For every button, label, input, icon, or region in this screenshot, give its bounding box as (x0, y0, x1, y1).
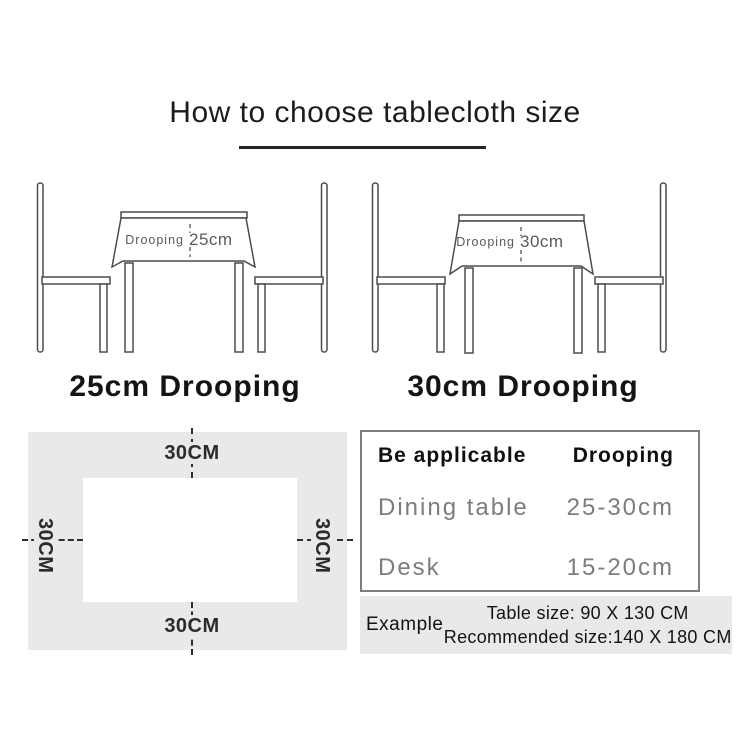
tablecloth-illustrations: Drooping 25cm (0, 175, 750, 361)
spec-row1-value: 25-30cm (567, 494, 674, 522)
example-recommended-size: Recommended size:140 X 180 CM (443, 625, 732, 649)
example-table-size: Table size: 90 X 130 CM (443, 601, 732, 625)
top-dimension-label: 30CM (160, 442, 224, 464)
chair-right-drawing (255, 183, 327, 352)
drooping-value: 25cm (189, 230, 233, 249)
table-legs-drawing (125, 263, 243, 352)
example-label: Example (366, 614, 443, 636)
spec-row2-name: Desk (378, 554, 441, 582)
example-box: Example Table size: 90 X 130 CM Recommen… (360, 596, 732, 654)
tabletop-area-rect (83, 478, 297, 602)
example-lines: Table size: 90 X 130 CM Recommended size… (443, 601, 732, 649)
left-dimension-label: 30CM (34, 518, 56, 562)
spec-table-header-row: Be applicable Drooping (378, 444, 674, 468)
caption-25cm-drooping: 25cm Drooping (65, 370, 305, 404)
tablecloth-size-infographic: How to choose tablecloth size (0, 0, 750, 750)
chair-left-drawing (373, 183, 446, 352)
spec-row2-value: 15-20cm (567, 554, 674, 582)
chair-left-drawing (38, 183, 111, 352)
caption-30cm-drooping: 30cm Drooping (403, 370, 643, 404)
table-legs-drawing (465, 268, 582, 353)
bottom-dimension-label: 30CM (160, 615, 224, 637)
illustration-30cm: Drooping 30cm (373, 183, 667, 353)
right-dimension-label: 30CM (311, 518, 333, 562)
table-row: Desk 15-20cm (378, 554, 674, 582)
drooping-label: Drooping (456, 235, 515, 249)
spec-row1-name: Dining table (378, 494, 529, 522)
title-underline (239, 146, 486, 149)
illustration-25cm: Drooping 25cm (38, 183, 328, 352)
drooping-label: Drooping (125, 233, 184, 247)
drooping-spec-table: Be applicable Drooping Dining table 25-3… (360, 430, 700, 592)
chair-right-drawing (595, 183, 666, 352)
table-row: Dining table 25-30cm (378, 494, 674, 522)
spec-col2-header: Drooping (573, 444, 674, 468)
drooping-value: 30cm (520, 232, 564, 251)
spec-col1-header: Be applicable (378, 444, 526, 468)
page-title: How to choose tablecloth size (0, 96, 750, 130)
